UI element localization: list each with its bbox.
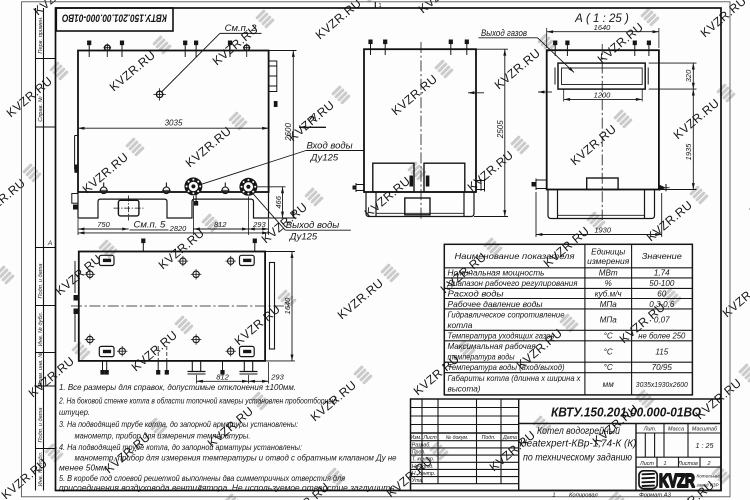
svg-text:Котельный: Котельный [697,472,722,478]
svg-text:0,07: 0,07 [654,316,670,325]
svg-text:2. На боковой стенке котла в о: 2. На боковой стенке котла в области топ… [58,395,337,405]
svg-text:Котел водогрейный: Котел водогрейный [537,426,620,437]
svg-text:Справ. №: Справ. № [38,96,44,121]
svg-text:KVZR: KVZR [659,470,695,491]
svg-text:1: 1 [552,492,555,498]
svg-text:не более 250: не более 250 [638,331,685,340]
svg-text:Температура воды (вход/выход): Температура воды (вход/выход) [448,363,565,372]
svg-text:завод РЗР: завод РЗР [696,482,720,487]
svg-text:Подп. и дата: Подп. и дата [38,407,44,442]
svg-text:0,3-0,6: 0,3-0,6 [649,300,675,309]
svg-text:Выход воды: Выход воды [286,220,339,231]
svg-text:Рабочее давление воды: Рабочее давление воды [448,300,543,309]
svg-text:Перв. примен.: Перв. примен. [38,16,44,53]
svg-text:См.п. 5: См.п. 5 [134,220,167,231]
svg-text:Единицы: Единицы [591,248,625,257]
svg-text:по техническому заданию: по техническому заданию [523,453,632,464]
svg-text:293: 293 [252,220,266,229]
svg-text:°С: °С [604,348,613,357]
svg-text:812: 812 [216,373,229,382]
svg-text:Изм.: Изм. [410,435,421,441]
svg-text:Формат А3: Формат А3 [639,492,671,498]
svg-text:КВТУ.150.201.00.000-01ВО: КВТУ.150.201.00.000-01ВО [551,405,701,420]
svg-text:Взам. инв. №: Взам. инв. № [38,352,44,387]
svg-text:Инв. № подл.: Инв. № подл. [38,452,44,487]
svg-text:466: 466 [274,195,283,208]
svg-text:Выход газов: Выход газов [481,28,527,38]
svg-text:Утв.: Утв. [412,478,424,484]
svg-text:320: 320 [684,69,693,82]
svg-text:измерения: измерения [587,257,630,266]
svg-text:куб.м/ч: куб.м/ч [595,289,623,298]
svg-text:°С: °С [604,331,613,340]
svg-text:манометр, прибор для измерения: манометр, прибор для измерения температу… [75,453,397,463]
svg-text:Копировал: Копировал [569,492,599,498]
svg-text:Ду125: Ду125 [310,153,339,164]
svg-text:МПа: МПа [600,300,618,309]
svg-text:293: 293 [270,373,284,382]
svg-text:Гидравлическое сопротивление: Гидравлическое сопротивление [448,310,565,319]
svg-text:Масштаб: Масштаб [692,427,718,433]
svg-text:750: 750 [97,220,110,229]
svg-text:Листов: Листов [677,461,698,467]
svg-text:Габариты котла (длинна х ширин: Габариты котла (длинна х ширина х [448,374,582,383]
svg-text:Нач.отд.: Нач.отд. [412,464,434,470]
svg-text:котла: котла [448,321,474,330]
svg-text:°С: °С [604,363,613,372]
svg-text:2: 2 [707,461,711,467]
svg-text:60: 60 [657,289,667,298]
svg-text:Диапазон рабочего регулировани: Диапазон рабочего регулирования [447,279,579,288]
svg-text:Пров.: Пров. [412,450,426,456]
svg-text:Инв. № дубл.: Инв. № дубл. [38,312,44,346]
svg-text:50-100: 50-100 [649,279,675,288]
svg-text:1,74: 1,74 [654,269,670,278]
svg-text:штуцер.: штуцер. [59,407,90,417]
svg-text:См.п. 2: См.п. 2 [225,23,258,34]
svg-text:812: 812 [214,220,227,229]
svg-text:1930: 1930 [594,225,612,234]
svg-text:температура воды: температура воды [448,353,515,362]
svg-text:1935: 1935 [684,143,693,161]
svg-text:1: 1 [664,461,667,467]
svg-text:Т. контр.: Т. контр. [412,457,434,463]
svg-text:Расход воды: Расход воды [448,289,504,298]
svg-text:Лит.: Лит. [643,427,657,433]
svg-text:Разраб.: Разраб. [412,442,431,448]
svg-text:Лист: Лист [639,461,654,467]
svg-text:Подп.: Подп. [482,435,496,441]
svg-text:Максимальная рабочая: Максимальная рабочая [448,342,537,351]
svg-text:высота): высота) [448,385,481,394]
svg-text:КВТУ.150.201.00.000-01ВО: КВТУ.150.201.00.000-01ВО [62,12,167,24]
svg-text:Heatexpert-КВр-1,74-К (К): Heatexpert-КВр-1,74-К (К) [520,438,637,449]
svg-text:Номинальная мощность: Номинальная мощность [448,269,545,278]
svg-text:2600: 2600 [284,123,293,142]
svg-text:Дата: Дата [502,435,517,441]
svg-text:Масса: Масса [668,427,684,433]
svg-text:присоединения воздуховода вент: присоединения воздуховода вентилятора. Н… [59,482,397,492]
svg-text:Подп. и дата: Подп. и дата [38,263,44,298]
svg-text:№ докум.: № докум. [446,435,469,441]
svg-text:МПа: МПа [600,316,618,325]
svg-text:1640: 1640 [283,297,292,315]
svg-text:Вход воды: Вход воды [307,141,353,152]
svg-text:1 : 25: 1 : 25 [696,441,715,450]
svg-text:Лист: Лист [422,435,437,441]
svg-text:МВт: МВт [599,269,618,278]
svg-text:%: % [605,279,612,288]
svg-text:2820: 2820 [169,224,188,233]
svg-text:мм: мм [603,380,615,389]
svg-text:3035х1930х2600: 3035х1930х2600 [636,380,689,389]
svg-text:менее 50мм.: менее 50мм. [59,463,109,473]
svg-text:Ду125: Ду125 [289,232,318,243]
svg-text:4. На подводящей трубе котла,: 4. На подводящей трубе котла, до запорно… [59,442,302,452]
svg-text:Значение: Значение [642,252,683,261]
svg-text:1200: 1200 [594,90,612,99]
svg-text:3035: 3035 [165,119,183,128]
svg-text:1640: 1640 [594,23,612,32]
svg-text:Н. контр.: Н. контр. [412,471,435,477]
svg-text:2505: 2505 [496,120,505,139]
svg-text:1: 1 [378,3,381,9]
svg-text:А: А [308,112,316,124]
svg-text:Наименование показателя: Наименование показателя [455,252,576,261]
svg-text:Температура уходящих газов: Температура уходящих газов [448,331,555,340]
svg-text:А: А [47,240,52,247]
svg-text:манометр, прибор для измерения: манометр, прибор для измерения температу… [75,431,251,441]
svg-text:1. Все размеры для справок, до: 1. Все размеры для справок, допустимые о… [59,382,296,392]
svg-text:70/95: 70/95 [652,363,673,372]
svg-text:115: 115 [655,348,668,357]
svg-text:3. На подводящей трубе котла,: 3. На подводящей трубе котла, до запорно… [59,419,298,429]
